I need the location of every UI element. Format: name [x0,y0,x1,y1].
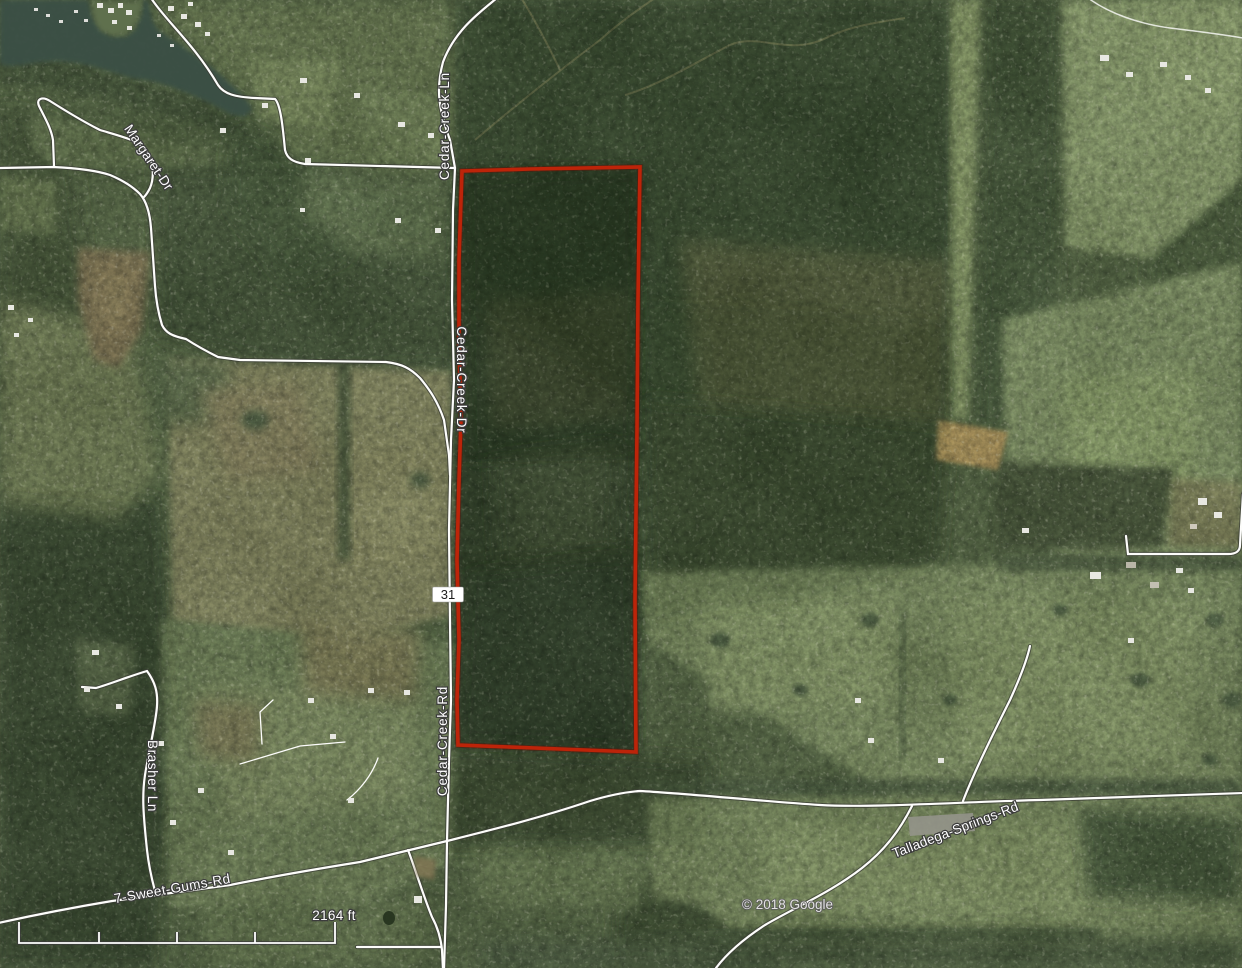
svg-text:Brasher Ln: Brasher Ln [145,740,160,812]
svg-text:Cedar-Creek-Rd: Cedar-Creek-Rd [435,686,450,796]
svg-text:31: 31 [441,587,455,602]
svg-text:© 2018 Google: © 2018 Google [742,897,833,912]
svg-text:Cedar-Creek-Ln: Cedar-Creek-Ln [437,72,452,180]
svg-text:Cedar-Creek-Dr: Cedar-Creek-Dr [454,326,469,433]
svg-text:2164 ft: 2164 ft [312,908,355,923]
